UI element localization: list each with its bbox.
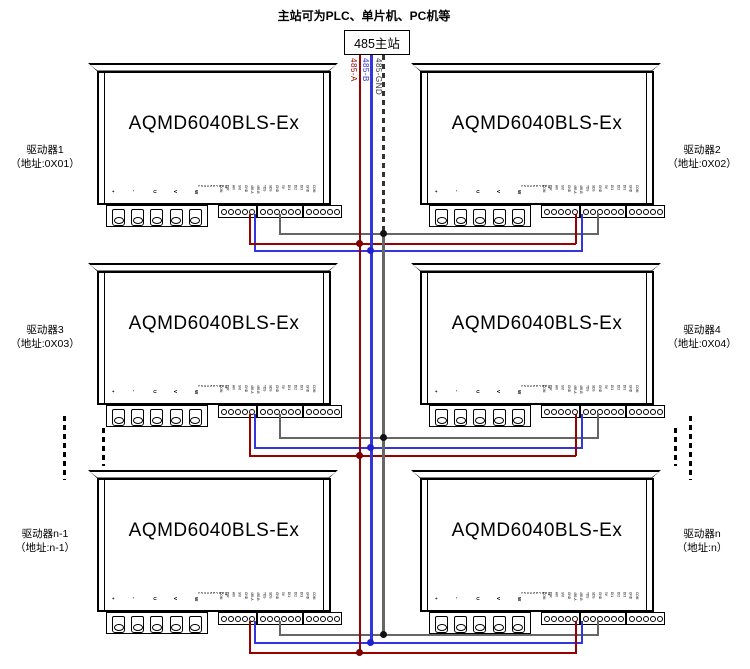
module-model-label: AQMD6040BLS-Ex xyxy=(99,313,329,335)
pin-label: GND xyxy=(628,385,631,404)
pin-label: SDS xyxy=(268,185,271,204)
screw-terminal xyxy=(611,409,617,415)
screw-terminal xyxy=(288,209,294,215)
pin-label: U xyxy=(152,190,157,204)
pin-label: DI2 xyxy=(293,592,296,611)
wire-clamp xyxy=(473,616,486,633)
signal-pin-labels: COMDIRAVISVIGND485-A485-BTDSSDSGND5VDI1D… xyxy=(219,592,315,611)
pin-label: + xyxy=(433,390,438,404)
wire-clamp xyxy=(131,409,144,426)
pin-label: U xyxy=(152,597,157,611)
pin-label: 485-A xyxy=(573,592,576,611)
wire-clamp xyxy=(473,209,486,226)
continuation-ellipsis-left-outer xyxy=(63,416,66,480)
screw-terminal xyxy=(313,409,319,415)
wire-clamp xyxy=(189,209,202,226)
screw-terminal xyxy=(629,409,635,415)
pin-label: GND xyxy=(305,185,308,204)
terminal-group xyxy=(580,405,626,418)
screw-terminal xyxy=(221,409,227,415)
pin-label: 5V xyxy=(604,592,607,611)
junction-dot-485b-row1 xyxy=(367,247,374,254)
pin-label: SVI xyxy=(238,185,241,204)
wire-row3-left-485a-drop xyxy=(249,621,251,654)
wire-clamp xyxy=(493,409,506,426)
pin-label: V xyxy=(496,390,501,404)
dip-pin-labels: 12345678910 xyxy=(520,385,540,404)
pin-label: V xyxy=(173,190,178,204)
pin-label: DI1 xyxy=(287,592,290,611)
screw-terminal xyxy=(306,209,312,215)
continuation-ellipsis-left-inner xyxy=(102,428,105,466)
pin-label: DI1 xyxy=(610,185,613,204)
wire-row2-485a-horizontal xyxy=(249,455,576,457)
screw-terminal xyxy=(334,409,340,415)
driver-name: 驱动器4 xyxy=(683,324,720,336)
wire-row1-right-485a-drop xyxy=(575,214,577,244)
power-terminal-block xyxy=(429,205,531,227)
screw-terminal xyxy=(636,616,642,622)
wire-clamp xyxy=(454,616,467,633)
wire-row1-right-485b-drop xyxy=(581,214,583,252)
terminal-group xyxy=(218,205,257,218)
pin-label: COM xyxy=(312,185,315,204)
screw-terminal xyxy=(551,616,557,622)
power-pin-labels: +-UVW xyxy=(433,597,521,611)
wire-row3-gnd-horizontal xyxy=(279,634,598,636)
wire-clamp xyxy=(435,616,448,633)
screw-terminal xyxy=(590,616,596,622)
diagram-title: 主站可为PLC、单片机、PC机等 xyxy=(234,7,494,24)
pin-label: SVI xyxy=(238,592,241,611)
screw-terminal xyxy=(604,616,610,622)
pin-label: TDS xyxy=(262,592,265,611)
screw-terminal xyxy=(228,209,234,215)
screw-terminal xyxy=(281,616,287,622)
screw-terminal xyxy=(590,409,596,415)
module-model-label: AQMD6040BLS-Ex xyxy=(422,113,652,135)
terminal-group xyxy=(218,405,257,418)
screw-terminal xyxy=(281,409,287,415)
wire-row2-485b-horizontal xyxy=(254,447,583,449)
pin-label: COM xyxy=(635,592,638,611)
terminal-group xyxy=(218,612,257,625)
wire-clamp xyxy=(150,409,163,426)
terminal-group xyxy=(626,612,665,625)
pin-label: COM xyxy=(312,385,315,404)
screw-terminal xyxy=(267,409,273,415)
driver-module-1: AQMD6040BLS-Ex +-UVW 12345678910 COMDIRA… xyxy=(88,63,338,227)
screw-terminal xyxy=(636,209,642,215)
screw-terminal xyxy=(235,209,241,215)
wire-row2-right-485b-drop xyxy=(581,414,583,449)
pin-label: GND xyxy=(244,385,247,404)
pin-label: TDS xyxy=(585,185,588,204)
pin-label: DIR xyxy=(225,185,228,204)
wire-row1-right-gnd-drop xyxy=(597,214,599,235)
driver-label-5: 驱动器n-1 （地址:n-1） xyxy=(0,527,90,555)
pin-label: U xyxy=(475,597,480,611)
screw-terminal xyxy=(643,616,649,622)
pin-label: TDS xyxy=(585,385,588,404)
pin-label: SVI xyxy=(561,592,564,611)
pin-label: DIR xyxy=(225,385,228,404)
wire-clamp xyxy=(189,616,202,633)
power-pin-labels: +-UVW xyxy=(110,190,198,204)
wire-row1-left-485a-drop xyxy=(249,214,251,244)
screw-terminal xyxy=(650,209,656,215)
dip-pin-labels: 12345678910 xyxy=(197,185,217,204)
pin-label: GND xyxy=(567,592,570,611)
screw-terminal xyxy=(281,209,287,215)
wire-row2-left-gnd-drop xyxy=(279,414,281,439)
driver-name: 驱动器3 xyxy=(26,324,63,336)
pin-label: DIR xyxy=(548,592,551,611)
wire-clamp xyxy=(112,209,125,226)
screw-terminal xyxy=(327,209,333,215)
wire-row3-485a-horizontal xyxy=(249,652,576,654)
junction-dot-485a-row1 xyxy=(356,240,363,247)
pin-label: TDS xyxy=(262,385,265,404)
screw-terminal xyxy=(260,409,266,415)
wire-row2-gnd-horizontal xyxy=(279,437,598,439)
pin-label: DIR xyxy=(225,592,228,611)
wire-row3-right-485b-drop xyxy=(581,621,583,644)
pin-label: GND xyxy=(275,185,278,204)
junction-dot-485a-row2 xyxy=(356,452,363,459)
pin-label: - xyxy=(131,597,136,611)
pin-label: SDS xyxy=(268,592,271,611)
screw-terminal xyxy=(242,209,248,215)
wire-clamp xyxy=(189,409,202,426)
pin-label: U xyxy=(475,390,480,404)
screw-terminal xyxy=(235,409,241,415)
screw-terminal xyxy=(295,409,301,415)
wire-clamp xyxy=(454,409,467,426)
signal-pin-labels: COMDIRAVISVIGND485-A485-BTDSSDSGND5VDI1D… xyxy=(542,592,638,611)
pin-label: DI2 xyxy=(616,385,619,404)
screw-terminal xyxy=(643,209,649,215)
screw-terminal xyxy=(551,409,557,415)
pin-label: 485-B xyxy=(579,592,582,611)
terminal-group xyxy=(626,205,665,218)
driver-label-1: 驱动器1 （地址:0X01） xyxy=(0,143,90,171)
screw-terminal xyxy=(604,209,610,215)
pin-label: COM xyxy=(542,385,545,404)
screw-terminal xyxy=(544,209,550,215)
pin-label: GND xyxy=(305,385,308,404)
pin-label: SVI xyxy=(561,385,564,404)
wire-clamp xyxy=(170,209,183,226)
pin-label: 5V xyxy=(604,385,607,404)
pin-label: DI2 xyxy=(293,385,296,404)
pin-label: GND xyxy=(275,592,278,611)
pin-label: GND xyxy=(567,385,570,404)
screw-terminal xyxy=(618,209,624,215)
screw-terminal xyxy=(558,616,564,622)
wire-clamp xyxy=(435,409,448,426)
dip-pin-labels: 12345678910 xyxy=(197,385,217,404)
pin-label: SVI xyxy=(238,385,241,404)
screw-terminal xyxy=(544,409,550,415)
screw-terminal xyxy=(551,209,557,215)
bus-wire-485a xyxy=(359,55,361,654)
screw-terminal xyxy=(306,409,312,415)
pin-label: DI2 xyxy=(616,592,619,611)
wire-row2-left-485a-drop xyxy=(249,414,251,456)
pin-label: + xyxy=(110,190,115,204)
pin-label: AVI xyxy=(554,385,557,404)
driver-address: （地址:0X04） xyxy=(667,338,736,350)
screw-terminal xyxy=(650,616,656,622)
driver-address: （地址:0X03） xyxy=(10,338,79,350)
module-model-label: AQMD6040BLS-Ex xyxy=(99,520,329,542)
screw-terminal xyxy=(636,409,642,415)
pin-label: 5V xyxy=(604,185,607,204)
pin-label: TDS xyxy=(262,185,265,204)
wire-clamp xyxy=(493,209,506,226)
screw-terminal xyxy=(611,209,617,215)
screw-terminal xyxy=(583,209,589,215)
driver-address: （地址:0X02） xyxy=(667,158,736,170)
screw-terminal xyxy=(334,209,340,215)
pin-label: GND xyxy=(598,385,601,404)
pin-label: COM xyxy=(219,592,222,611)
pin-label: SDS xyxy=(591,385,594,404)
pin-label: GND xyxy=(628,592,631,611)
screw-terminal xyxy=(565,616,571,622)
screw-terminal xyxy=(228,616,234,622)
pin-label: DI1 xyxy=(287,185,290,204)
continuation-ellipsis-right-outer xyxy=(689,416,692,480)
pin-label: COM xyxy=(542,592,545,611)
pin-label: GND xyxy=(598,185,601,204)
pin-label: 485-B xyxy=(579,185,582,204)
wire-clamp xyxy=(512,409,525,426)
screw-terminal xyxy=(583,616,589,622)
wire-clamp xyxy=(150,616,163,633)
terminal-group xyxy=(626,405,665,418)
pin-label: AVI xyxy=(554,592,557,611)
screw-terminal xyxy=(295,616,301,622)
junction-dot-gnd-row1 xyxy=(380,230,387,237)
screw-terminal xyxy=(334,616,340,622)
screw-terminal xyxy=(618,409,624,415)
driver-name: 驱动器1 xyxy=(26,144,63,156)
pin-label: AVI xyxy=(554,185,557,204)
pin-label: SVI xyxy=(561,185,564,204)
wire-clamp xyxy=(473,409,486,426)
signal-pin-labels: COMDIRAVISVIGND485-A485-BTDSSDSGND5VDI1D… xyxy=(219,185,315,204)
pin-label: DIR xyxy=(548,385,551,404)
driver-address: （地址:n） xyxy=(677,542,728,554)
screw-terminal xyxy=(643,409,649,415)
driver-name: 驱动器n xyxy=(683,528,720,540)
screw-terminal xyxy=(650,409,656,415)
pin-label: 485-B xyxy=(256,185,259,204)
screw-terminal xyxy=(267,616,273,622)
pin-label: SDS xyxy=(591,592,594,611)
wire-row3-right-gnd-drop xyxy=(597,621,599,636)
pin-label: GND xyxy=(244,185,247,204)
pin-label: + xyxy=(433,597,438,611)
wire-clamp xyxy=(454,209,467,226)
screw-terminal xyxy=(320,616,326,622)
junction-dot-gnd-row3 xyxy=(380,631,387,638)
screw-terminal xyxy=(313,209,319,215)
pin-label: DI3 xyxy=(299,185,302,204)
pin-label: DI3 xyxy=(299,592,302,611)
pin-label: GND xyxy=(567,185,570,204)
driver-name: 驱动器n-1 xyxy=(22,528,69,540)
module-model-label: AQMD6040BLS-Ex xyxy=(422,520,652,542)
screw-terminal xyxy=(327,616,333,622)
terminal-group xyxy=(580,612,626,625)
bus-wire-485b xyxy=(370,55,373,644)
screw-terminal xyxy=(267,209,273,215)
wire-row2-right-gnd-drop xyxy=(597,414,599,439)
power-terminal-block xyxy=(106,205,208,227)
pin-label: + xyxy=(110,390,115,404)
driver-module-5: AQMD6040BLS-Ex +-UVW 12345678910 COMDIRA… xyxy=(88,470,338,634)
pin-label: DI3 xyxy=(622,385,625,404)
pin-label: 485-B xyxy=(579,385,582,404)
pin-label: DI2 xyxy=(616,185,619,204)
wire-clamp xyxy=(512,209,525,226)
wire-clamp xyxy=(131,209,144,226)
wire-clamp xyxy=(112,409,125,426)
screw-terminal xyxy=(604,409,610,415)
signal-pin-labels: COMDIRAVISVIGND485-A485-BTDSSDSGND5VDI1D… xyxy=(542,185,638,204)
driver-label-3: 驱动器3 （地址:0X03） xyxy=(0,323,90,351)
pin-label: V xyxy=(496,597,501,611)
wire-row3-left-485b-drop xyxy=(254,621,256,644)
screw-terminal xyxy=(558,209,564,215)
wire-row1-left-gnd-drop xyxy=(279,214,281,235)
driver-module-6: AQMD6040BLS-Ex +-UVW 12345678910 COMDIRA… xyxy=(411,470,661,634)
junction-dot-485b-row2 xyxy=(367,444,374,451)
pin-label: GND xyxy=(305,592,308,611)
pin-label: DI2 xyxy=(293,185,296,204)
pin-label: DI3 xyxy=(299,385,302,404)
power-terminal-block xyxy=(429,405,531,427)
screw-terminal xyxy=(583,409,589,415)
pin-label: DIR xyxy=(548,185,551,204)
pin-label: SDS xyxy=(591,185,594,204)
wire-row2-right-485a-drop xyxy=(575,414,577,456)
junction-dot-gnd-row2 xyxy=(380,434,387,441)
pin-label: 485-A xyxy=(250,592,253,611)
screw-terminal xyxy=(618,616,624,622)
driver-address: （地址:0X01） xyxy=(10,158,79,170)
signal-terminal-strip xyxy=(541,405,665,418)
pin-label: COM xyxy=(635,385,638,404)
bus-label-485a: 485-A xyxy=(349,58,357,82)
pin-label: 5V xyxy=(281,385,284,404)
terminal-group xyxy=(303,205,342,218)
pin-label: AVI xyxy=(231,385,234,404)
screw-terminal xyxy=(657,409,663,415)
pin-label: DI3 xyxy=(622,185,625,204)
screw-terminal xyxy=(611,616,617,622)
screw-terminal xyxy=(228,409,234,415)
signal-terminal-strip xyxy=(541,612,665,625)
bus-label-485b: 485-B xyxy=(361,58,369,82)
pin-label: - xyxy=(131,190,136,204)
terminal-group xyxy=(303,612,342,625)
power-pin-labels: +-UVW xyxy=(110,597,198,611)
pin-label: DI1 xyxy=(610,385,613,404)
screw-terminal xyxy=(221,209,227,215)
screw-terminal xyxy=(657,616,663,622)
pin-label: AVI xyxy=(231,185,234,204)
pin-label: TDS xyxy=(585,592,588,611)
screw-terminal xyxy=(295,209,301,215)
pin-label: COM xyxy=(219,385,222,404)
junction-dot-485a-row3 xyxy=(356,649,363,656)
pin-label: DI1 xyxy=(610,592,613,611)
pin-label: COM xyxy=(219,185,222,204)
screw-terminal xyxy=(235,616,241,622)
wire-clamp xyxy=(512,616,525,633)
pin-label: 485-A xyxy=(573,385,576,404)
pin-label: V xyxy=(173,390,178,404)
dip-pin-labels: 12345678910 xyxy=(520,592,540,611)
pin-label: - xyxy=(454,190,459,204)
module-model-label: AQMD6040BLS-Ex xyxy=(99,113,329,135)
screw-terminal xyxy=(260,616,266,622)
driver-module-3: AQMD6040BLS-Ex +-UVW 12345678910 COMDIRA… xyxy=(88,263,338,427)
driver-label-4: 驱动器4 （地址:0X04） xyxy=(657,323,747,351)
pin-label: 485-B xyxy=(256,385,259,404)
junction-dot-485b-row3 xyxy=(367,639,374,646)
pin-label: SDS xyxy=(268,385,271,404)
wire-row1-left-485b-drop xyxy=(254,214,256,252)
driver-module-4: AQMD6040BLS-Ex +-UVW 12345678910 COMDIRA… xyxy=(411,263,661,427)
pin-label: 485-A xyxy=(250,385,253,404)
dip-pin-labels: 12345678910 xyxy=(197,592,217,611)
screw-terminal xyxy=(288,409,294,415)
pin-label: 5V xyxy=(281,592,284,611)
screw-terminal xyxy=(288,616,294,622)
pin-label: DI1 xyxy=(287,385,290,404)
screw-terminal xyxy=(306,616,312,622)
screw-terminal xyxy=(313,616,319,622)
screw-terminal xyxy=(260,209,266,215)
pin-label: U xyxy=(152,390,157,404)
pin-label: U xyxy=(475,190,480,204)
screw-terminal xyxy=(657,209,663,215)
power-terminal-block xyxy=(106,405,208,427)
pin-label: V xyxy=(496,190,501,204)
pin-label: 485-A xyxy=(250,185,253,204)
wire-clamp xyxy=(112,616,125,633)
screw-terminal xyxy=(242,616,248,622)
screw-terminal xyxy=(565,209,571,215)
wire-clamp xyxy=(131,616,144,633)
wire-clamp xyxy=(150,209,163,226)
pin-label: GND xyxy=(275,385,278,404)
pin-label: GND xyxy=(244,592,247,611)
continuation-ellipsis-right-inner xyxy=(674,428,677,466)
signal-pin-labels: COMDIRAVISVIGND485-A485-BTDSSDSGND5VDI1D… xyxy=(219,385,315,404)
pin-label: V xyxy=(173,597,178,611)
pin-label: GND xyxy=(628,185,631,204)
power-pin-labels: +-UVW xyxy=(433,390,521,404)
dip-pin-labels: 12345678910 xyxy=(520,185,540,204)
screw-terminal xyxy=(558,409,564,415)
rs485-wiring-diagram: 主站可为PLC、单片机、PC机等 485主站 485-A 485-B 485-G… xyxy=(0,0,750,669)
